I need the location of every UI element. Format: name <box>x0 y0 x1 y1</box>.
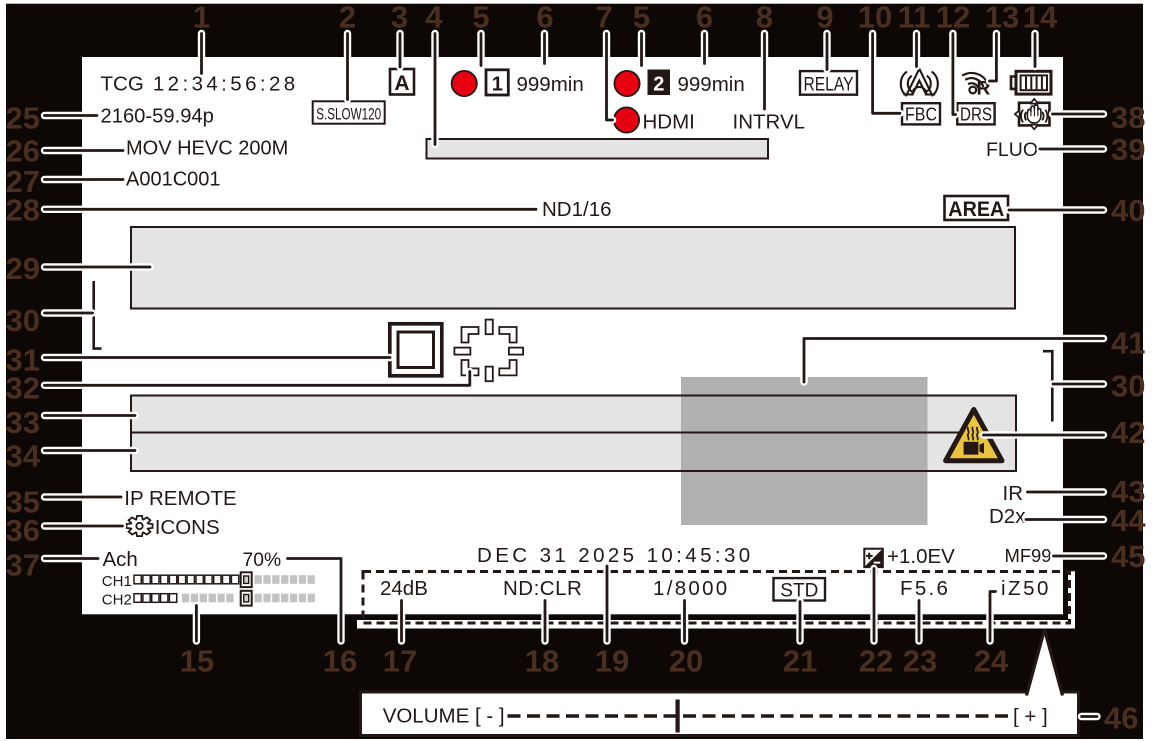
svg-text:CH1: CH1 <box>102 573 132 590</box>
svg-text:16: 16 <box>323 644 357 679</box>
svg-text:5: 5 <box>472 0 489 35</box>
svg-text:20: 20 <box>669 644 703 679</box>
svg-text:2: 2 <box>339 0 356 35</box>
svg-text:iZ50: iZ50 <box>1001 577 1051 600</box>
svg-text:DRS: DRS <box>960 104 992 125</box>
svg-text:6: 6 <box>696 0 713 35</box>
svg-text:AREA: AREA <box>948 197 1004 221</box>
svg-text:S.SLOW120: S.SLOW120 <box>316 104 381 123</box>
svg-text:36: 36 <box>6 513 40 548</box>
svg-text:45: 45 <box>1111 539 1145 574</box>
svg-text:14: 14 <box>1023 0 1058 35</box>
svg-text:28: 28 <box>6 193 40 228</box>
svg-text:7: 7 <box>595 0 612 35</box>
svg-text:6: 6 <box>536 0 553 35</box>
svg-text:30: 30 <box>1111 369 1145 404</box>
svg-text:A001C001: A001C001 <box>126 169 221 191</box>
svg-text:IP REMOTE: IP REMOTE <box>124 487 236 510</box>
svg-text:38: 38 <box>1111 100 1145 135</box>
svg-text:1: 1 <box>492 74 503 96</box>
svg-text:21: 21 <box>783 644 817 679</box>
svg-text:MOV HEVC 200M: MOV HEVC 200M <box>126 138 288 160</box>
svg-text:A: A <box>394 72 409 95</box>
svg-text:1/8000: 1/8000 <box>653 577 730 600</box>
svg-text:+1.0EV: +1.0EV <box>887 545 955 568</box>
svg-text:32: 32 <box>6 371 40 406</box>
svg-text:ND1/16: ND1/16 <box>542 198 612 221</box>
svg-text:29: 29 <box>6 251 40 286</box>
svg-text:Ach: Ach <box>103 548 138 571</box>
svg-text:11: 11 <box>898 0 931 35</box>
svg-text:2: 2 <box>653 74 664 96</box>
svg-text:24dB: 24dB <box>380 577 428 600</box>
svg-text:ND:CLR: ND:CLR <box>503 577 582 600</box>
svg-text:24: 24 <box>974 644 1009 679</box>
svg-text:1: 1 <box>193 0 210 35</box>
svg-text:VOLUME [ - ]: VOLUME [ - ] <box>383 705 505 728</box>
svg-text:999min: 999min <box>678 73 745 96</box>
svg-text:41: 41 <box>1111 326 1145 361</box>
svg-text:CH2: CH2 <box>102 592 132 609</box>
svg-text:17: 17 <box>383 644 417 679</box>
svg-text:F5.6: F5.6 <box>900 577 950 600</box>
svg-text:42: 42 <box>1111 415 1145 450</box>
svg-text:15: 15 <box>180 644 214 679</box>
svg-text:34: 34 <box>6 439 41 474</box>
svg-text:39: 39 <box>1111 132 1145 167</box>
svg-text:30: 30 <box>6 303 40 338</box>
svg-text:4: 4 <box>425 0 443 35</box>
svg-text:19: 19 <box>595 644 629 679</box>
svg-text:33: 33 <box>6 405 40 440</box>
svg-text:5: 5 <box>633 0 650 35</box>
svg-text:25: 25 <box>6 101 40 136</box>
svg-text:46: 46 <box>1104 701 1138 736</box>
svg-text:FLUO: FLUO <box>986 139 1038 161</box>
svg-text:13: 13 <box>985 0 1019 35</box>
svg-text:RELAY: RELAY <box>804 74 854 95</box>
svg-text:FBC: FBC <box>905 104 937 125</box>
svg-text:10: 10 <box>858 0 892 35</box>
svg-text:DEC 31 2025 10:45:30: DEC 31 2025 10:45:30 <box>477 544 754 567</box>
svg-text:3: 3 <box>391 0 408 35</box>
svg-text:MF99: MF99 <box>1005 545 1052 566</box>
svg-text:40: 40 <box>1111 193 1145 228</box>
svg-text:18: 18 <box>525 644 559 679</box>
svg-text:9: 9 <box>816 0 833 35</box>
svg-text:37: 37 <box>6 548 40 583</box>
svg-text:22: 22 <box>859 644 893 679</box>
svg-text:2160-59.94p: 2160-59.94p <box>101 106 214 128</box>
svg-text:ICONS: ICONS <box>155 516 220 539</box>
svg-text:INTRVL: INTRVL <box>733 111 806 134</box>
svg-text:70%: 70% <box>243 550 282 571</box>
svg-text:HDMI: HDMI <box>643 111 695 134</box>
svg-text:8: 8 <box>756 0 773 35</box>
svg-text:IR: IR <box>1003 482 1024 505</box>
svg-text:999min: 999min <box>517 73 584 96</box>
svg-text:12: 12 <box>936 0 970 35</box>
svg-text:23: 23 <box>903 644 937 679</box>
svg-text:[ + ]: [ + ] <box>1013 705 1048 728</box>
svg-text:44: 44 <box>1111 503 1146 538</box>
svg-text:D2x: D2x <box>989 505 1026 528</box>
